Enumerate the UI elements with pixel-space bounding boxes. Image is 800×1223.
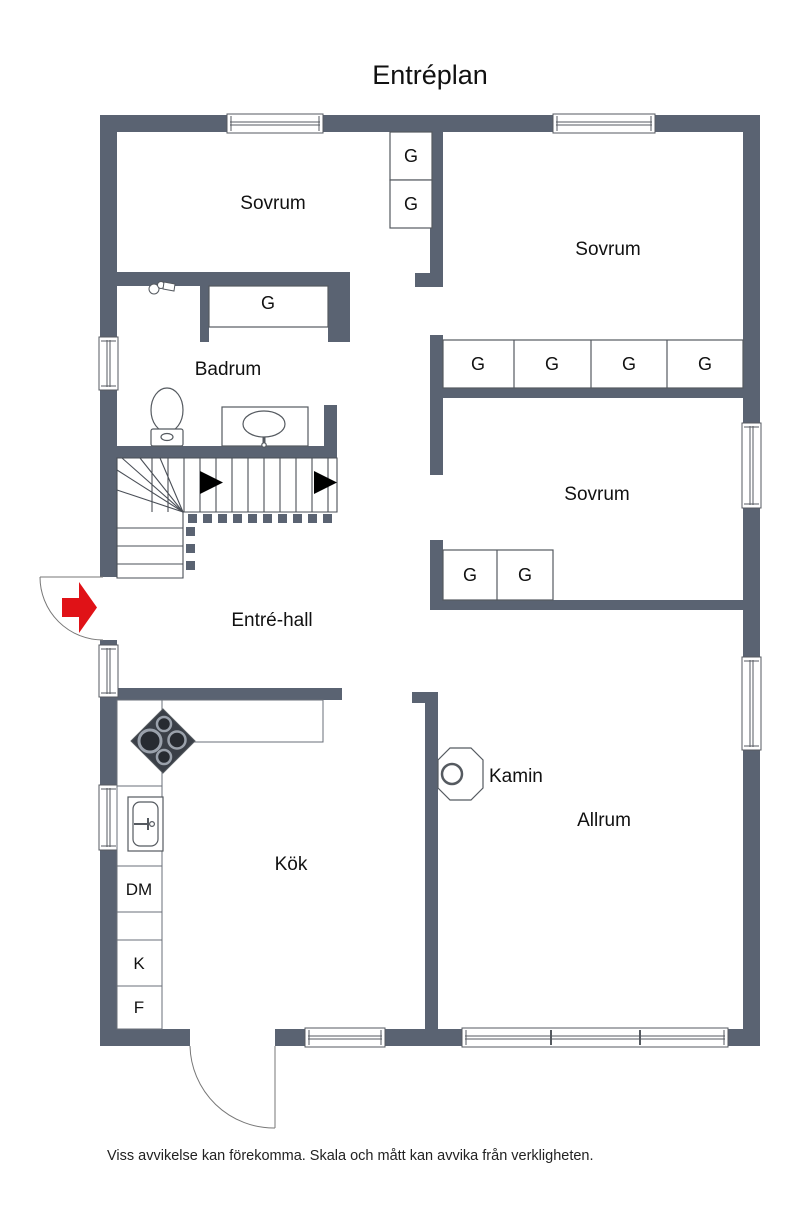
fireplace-icon — [438, 748, 483, 800]
window — [227, 114, 323, 133]
entry-door-opening — [99, 577, 118, 640]
room-label-sovrum-mid: Sovrum — [564, 484, 629, 505]
floor-plan: Entréplan — [0, 0, 800, 1223]
room-label-badrum: Badrum — [195, 359, 262, 380]
window — [99, 785, 118, 850]
wardrobe-label: G — [545, 354, 559, 374]
window — [99, 337, 118, 390]
wardrobe-unit — [443, 550, 553, 600]
disclaimer-text: Viss avvikelse kan förekomma. Skala och … — [107, 1148, 594, 1164]
back-door-opening — [190, 1028, 275, 1047]
interior-walls — [100, 132, 743, 1029]
stair-direction-arrows — [200, 471, 337, 494]
wardrobe-label: G — [471, 354, 485, 374]
wardrobe-label: G — [622, 354, 636, 374]
room-label-allrum: Allrum — [577, 810, 631, 831]
floor-plan-page: Entréplan — [0, 0, 800, 1223]
window — [742, 657, 761, 750]
room-label-sovrum-nw: Sovrum — [240, 193, 305, 214]
wardrobe-label: G — [463, 565, 477, 585]
bathroom-sink-icon — [222, 407, 308, 447]
wardrobe-label: G — [518, 565, 532, 585]
dishwasher-label: DM — [126, 880, 152, 899]
stair-rail-teeth — [186, 514, 332, 570]
window — [305, 1028, 385, 1047]
stair-treads — [152, 458, 328, 512]
window — [742, 423, 761, 508]
fridge-label: K — [133, 954, 145, 973]
back-door-swing — [190, 1046, 275, 1128]
entry-direction-arrow-icon — [62, 582, 97, 633]
room-label-kok: Kök — [275, 854, 308, 875]
toilet-icon — [151, 388, 183, 446]
freezer-label: F — [134, 998, 144, 1017]
window — [99, 645, 118, 697]
fireplace-label: Kamin — [489, 766, 543, 787]
plan-title: Entréplan — [372, 60, 488, 90]
room-label-sovrum-ne: Sovrum — [575, 239, 640, 260]
staircase — [117, 458, 337, 578]
wardrobe-label: G — [261, 293, 275, 313]
kitchen-sink-icon — [128, 797, 163, 851]
wardrobe-label: G — [404, 194, 418, 214]
stair-winder-lines — [117, 458, 183, 564]
room-label-entre-hall: Entré-hall — [231, 610, 312, 631]
wardrobe-label: G — [698, 354, 712, 374]
window — [553, 114, 655, 133]
wardrobe-label: G — [404, 146, 418, 166]
window — [462, 1028, 728, 1047]
